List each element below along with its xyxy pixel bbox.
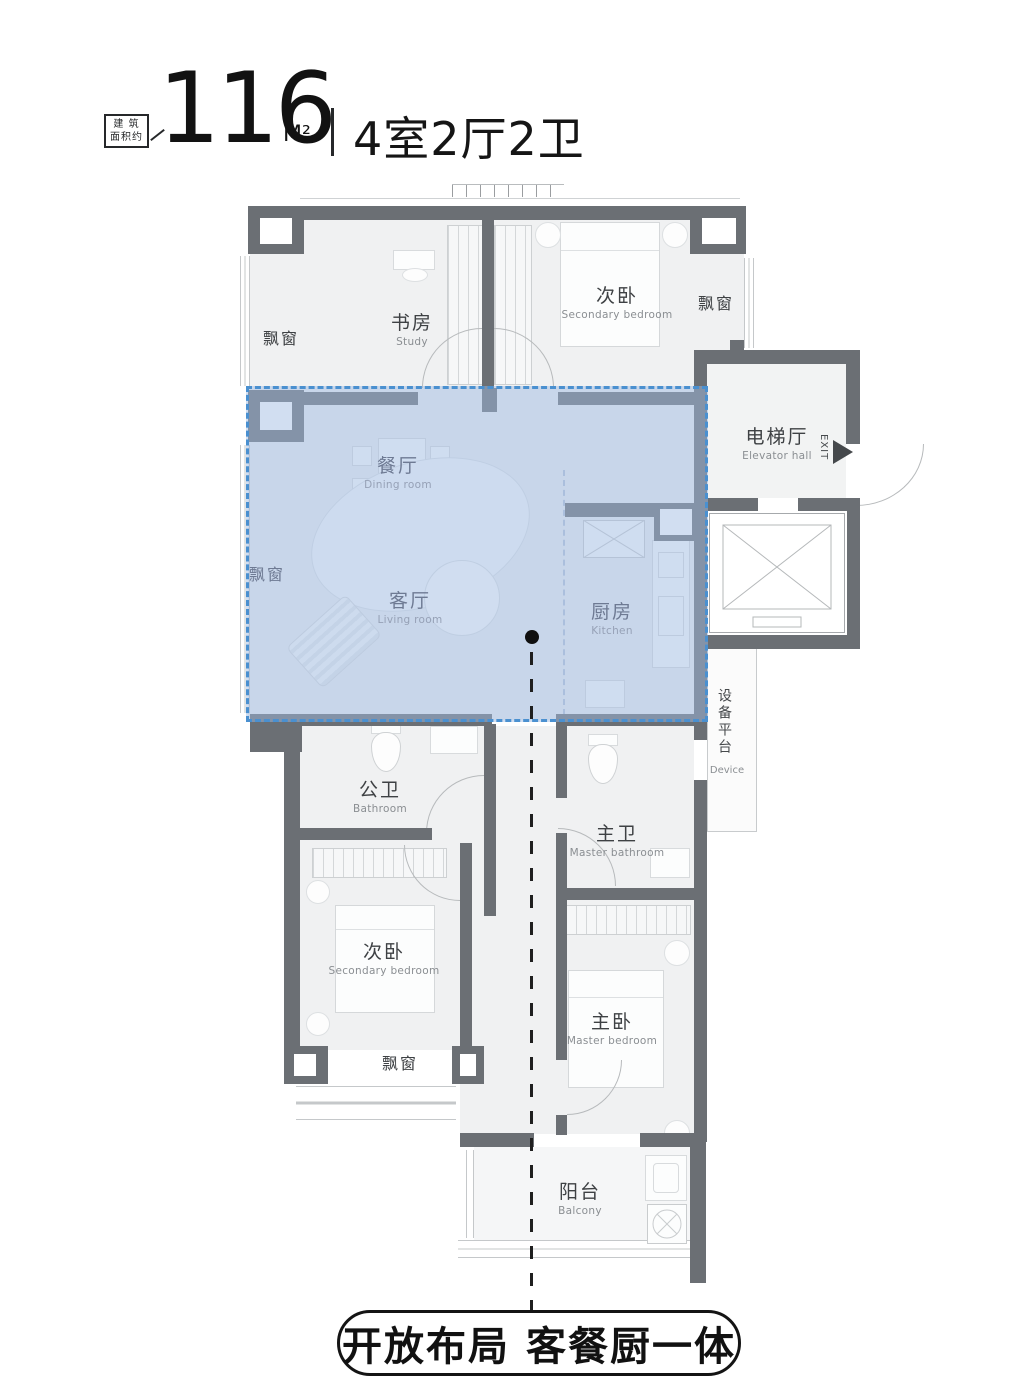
ac-platform — [452, 184, 564, 197]
wall — [484, 828, 496, 916]
room-label-cn: 公卫 — [353, 775, 407, 802]
room-label-en: Elevator hall — [742, 450, 812, 462]
room-label-en: Bathroom — [353, 803, 407, 815]
room-label-master-bedroom: 主卧 Master bedroom — [567, 1007, 657, 1047]
floor-plan: 书房 Study 次卧 Secondary bedroom 飘窗 飘窗 电梯厅 … — [0, 0, 1015, 1400]
elevator-shaft — [709, 513, 845, 633]
room-label-study-cn: 书房 — [391, 308, 433, 335]
study-chair — [402, 268, 428, 282]
room-label-en: Secondary bedroom — [562, 309, 673, 321]
wall — [460, 1133, 534, 1147]
exit-arrow-icon — [833, 440, 853, 464]
room-label-secondary-bedroom-bottom: 次卧 Secondary bedroom — [329, 937, 440, 977]
wall — [730, 340, 744, 352]
slogan-text: 开放布局 客餐厨一体 — [342, 1314, 736, 1372]
downlight-icon — [662, 222, 688, 248]
room-label-dining-room: 餐厅 Dining room — [364, 451, 432, 491]
room-label-en: Secondary bedroom — [329, 965, 440, 977]
wall — [694, 780, 707, 1142]
room-label-en: Master bedroom — [567, 1035, 657, 1047]
bathroom-sink — [430, 726, 478, 754]
wall — [846, 350, 860, 444]
wall — [284, 750, 300, 1050]
axis-dot — [525, 630, 539, 644]
entry-door-arc — [856, 444, 924, 506]
exit-label: EXIT — [818, 434, 829, 460]
room-label-elevator-hall: 电梯厅 Elevator hall — [742, 422, 812, 462]
room-label-cn: 主卫 — [570, 819, 665, 846]
wall — [248, 206, 746, 220]
room-label-cn: 电梯厅 — [742, 422, 812, 449]
room-label-en: Balcony — [558, 1205, 602, 1217]
window-opening — [260, 218, 292, 244]
room-label-en: Dining room — [364, 479, 432, 491]
wall — [460, 843, 472, 1050]
downlight-icon — [306, 1012, 330, 1036]
room-label-en: Kitchen — [591, 625, 633, 637]
room-label-cn: 主卧 — [567, 1007, 657, 1034]
wall — [690, 1147, 706, 1283]
downlight-icon — [306, 880, 330, 904]
wall — [694, 635, 860, 649]
slogan-pill: 开放布局 客餐厨一体 — [337, 1310, 741, 1376]
window-opening — [294, 1054, 316, 1076]
room-label-en: Living room — [377, 614, 442, 626]
room-label-cn: 次卧 — [329, 937, 440, 964]
window-opening — [460, 1054, 476, 1076]
wall — [640, 1133, 706, 1147]
wall — [482, 220, 494, 388]
downlight-icon — [535, 222, 561, 248]
bay-window-label-mid-left: 飘窗 — [249, 561, 285, 585]
bay-window-lines-bottom — [296, 1086, 456, 1120]
wall — [296, 828, 432, 840]
study-desk — [393, 250, 435, 270]
balcony-window-lines-left — [466, 1150, 474, 1238]
room-label-secondary-bedroom-top: 次卧 Secondary bedroom — [562, 281, 673, 321]
exterior-line — [300, 198, 740, 199]
wall — [556, 1115, 567, 1135]
bay-window-lines-top-right — [744, 258, 754, 348]
master-bedroom-closet — [565, 905, 691, 935]
room-label-cn: 客厅 — [377, 586, 442, 613]
wall — [556, 833, 567, 888]
bay-window-label-bottom: 飘窗 — [382, 1050, 418, 1074]
room-label-master-bathroom: 主卫 Master bathroom — [570, 819, 665, 859]
washing-machine — [647, 1204, 687, 1244]
axis-dashed-line — [530, 652, 533, 1310]
room-label-study-en: Study — [391, 336, 433, 348]
bay-window-label-top-right: 飘窗 — [698, 290, 734, 314]
room-label-study: 书房 Study — [391, 308, 433, 348]
room-label-device-platform-en: Device — [710, 765, 744, 776]
floorplan-page: { "header": { "badge": { "line1": "建 筑",… — [0, 0, 1015, 1400]
bay-window-lines-top-left — [240, 256, 250, 386]
bay-window-label-top-left: 飘窗 — [263, 325, 299, 349]
wall — [556, 726, 567, 798]
room-label-cn: 餐厅 — [364, 451, 432, 478]
wall — [694, 350, 860, 364]
room-label-cn: 次卧 — [562, 281, 673, 308]
room-label-en: Master bathroom — [570, 847, 665, 859]
open-area-highlight — [246, 386, 708, 722]
downlight-icon — [664, 940, 690, 966]
wall — [556, 888, 696, 900]
wall — [847, 498, 860, 648]
room-label-cn: 阳台 — [558, 1177, 602, 1204]
room-label-device-platform-cn: 设备平台 — [714, 688, 734, 756]
room-label-cn: 厨房 — [591, 597, 633, 624]
room-label-kitchen: 厨房 Kitchen — [591, 597, 633, 637]
wall — [556, 900, 567, 1060]
room-label-balcony: 阳台 Balcony — [558, 1177, 602, 1217]
window-opening — [702, 218, 736, 244]
room-label-bathroom: 公卫 Bathroom — [353, 775, 407, 815]
room-label-living-room: 客厅 Living room — [377, 586, 442, 626]
balcony-sink-basin — [653, 1163, 679, 1193]
